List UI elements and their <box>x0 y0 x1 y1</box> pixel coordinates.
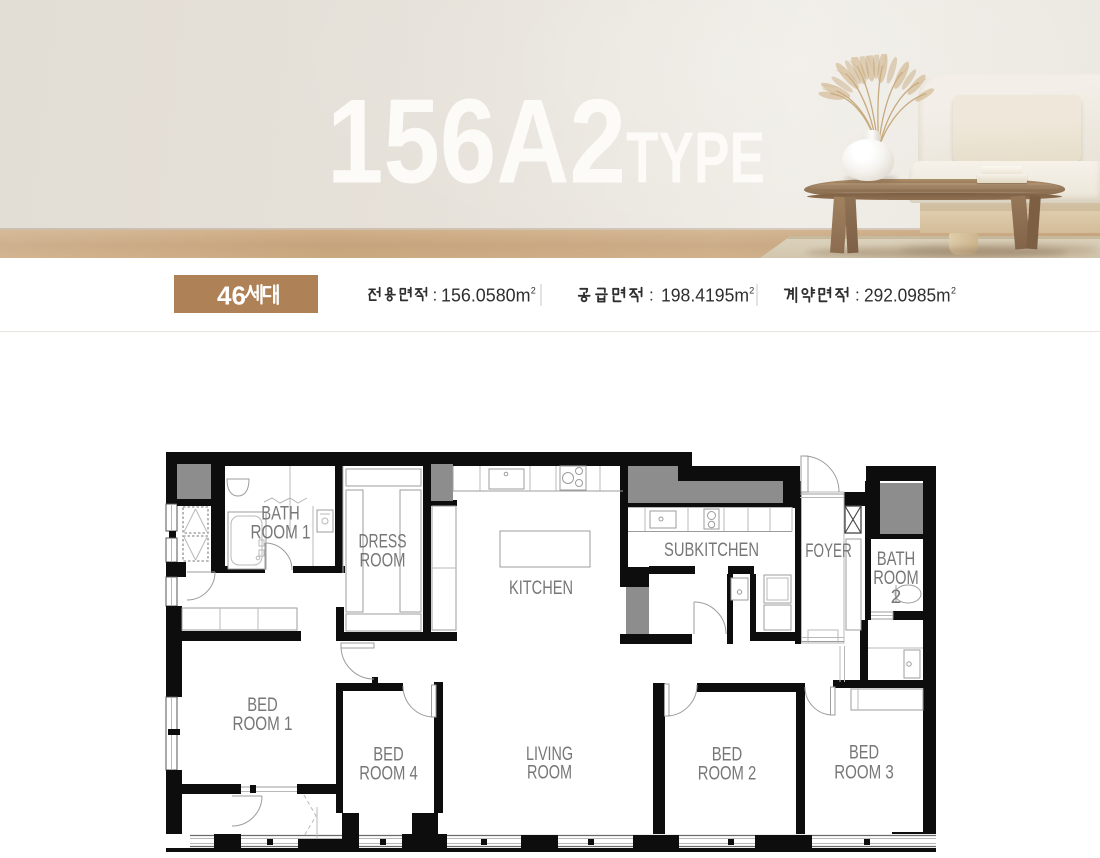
svg-text:ROOM 3: ROOM 3 <box>834 763 894 784</box>
svg-text:BATH: BATH <box>261 504 300 525</box>
svg-text:KITCHEN: KITCHEN <box>509 578 573 599</box>
svg-text:198.4195m: 198.4195m <box>661 285 749 306</box>
svg-text:2: 2 <box>531 286 536 296</box>
svg-text:BED: BED <box>373 745 404 766</box>
svg-text:ROOM 1: ROOM 1 <box>251 523 311 544</box>
svg-text:FOYER: FOYER <box>805 541 852 562</box>
svg-text:DRESS: DRESS <box>359 532 407 553</box>
svg-text:BED: BED <box>712 745 743 766</box>
svg-text:2: 2 <box>891 587 902 608</box>
svg-text:ROOM 4: ROOM 4 <box>359 764 418 785</box>
svg-text:BATH: BATH <box>877 549 916 570</box>
svg-text:292.0985m: 292.0985m <box>864 285 951 306</box>
svg-text:ROOM: ROOM <box>873 568 919 589</box>
svg-text::: : <box>855 286 860 305</box>
svg-text:2: 2 <box>749 286 754 296</box>
svg-text:TYPE: TYPE <box>626 119 765 199</box>
svg-text:2: 2 <box>951 286 956 296</box>
svg-text:BED: BED <box>849 743 879 764</box>
svg-text:SUBKITCHEN: SUBKITCHEN <box>664 540 759 561</box>
svg-text:ROOM 1: ROOM 1 <box>233 714 293 735</box>
svg-text:156.0580m: 156.0580m <box>441 285 531 306</box>
svg-text:46: 46 <box>217 281 246 311</box>
svg-text:ROOM: ROOM <box>527 763 572 784</box>
svg-text:BED: BED <box>247 695 278 716</box>
svg-text::: : <box>649 286 654 305</box>
svg-text:ROOM: ROOM <box>360 551 406 572</box>
svg-text:156A2: 156A2 <box>327 75 626 209</box>
svg-text::: : <box>433 286 438 305</box>
svg-text:ROOM 2: ROOM 2 <box>698 764 757 785</box>
